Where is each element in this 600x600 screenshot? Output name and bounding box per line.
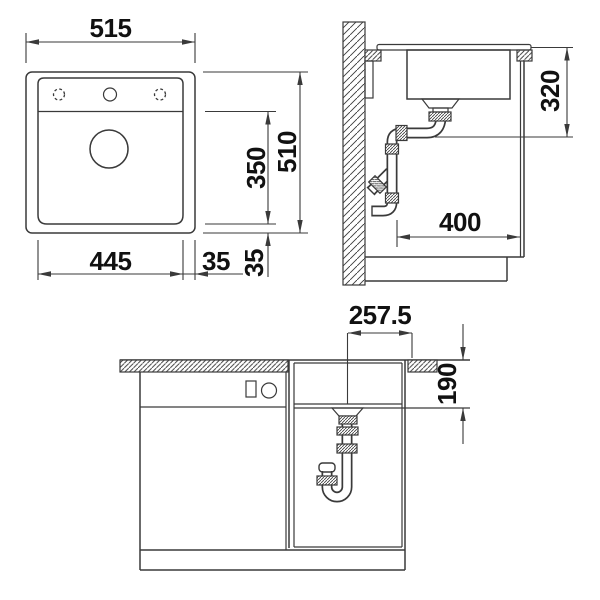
pipe-union-lower [386,193,399,203]
dim-label-overall-depth: 510 [272,131,302,173]
pipe-union-upper [386,144,399,154]
technical-drawing: 515 510 350 35 [0,0,600,600]
faucet-hole-right-icon [155,89,166,100]
counter-cut-left-front [120,360,288,372]
sink-outer-edge [26,72,195,233]
sink-spec-sheet: 515 510 350 35 [0,0,600,600]
trap-stub-cap [319,463,335,472]
drain-icon [90,130,128,168]
faucet-hole-center-icon [104,88,117,101]
drawer-symbol-circle [262,383,277,398]
plan-view: 515 510 350 35 [26,13,308,280]
dim-label-bowl-depth: 350 [241,147,271,189]
dim-label-center-to-edge: 257.5 [349,300,412,330]
counter-cut-left [365,50,381,61]
dim-label-rim-side: 35 [202,246,230,276]
pipe-union-horizontal [396,126,407,141]
dim-rim-side: 35 [183,240,243,280]
dim-label-overall-width: 515 [90,13,132,43]
trap-union-stub [317,476,337,485]
front-section-view: 257.5 190 [120,300,470,570]
drawer-symbol-rect [246,381,256,397]
trap-union-mid [337,444,357,453]
counter-cut-right [517,50,532,61]
dim-label-rim-front: 35 [239,249,269,277]
dim-label-under-counter-depth: 320 [535,70,565,112]
dim-overall-width: 515 [26,13,195,63]
sink-rim-profile [377,45,531,51]
dim-rim-front: 35 [239,233,271,277]
dim-under-counter-depth: 320 [435,48,573,138]
dim-bowl-width: 445 [38,240,183,280]
faucet-hole-left-icon [54,89,65,100]
dim-label-counter-to-bowl-bottom: 190 [432,363,462,405]
bowl-section [407,50,510,99]
dim-counter-to-bowl-bottom: 190 [432,324,466,444]
s-trap-pipes [317,424,358,497]
dim-drain-clearance: 400 [397,207,520,247]
dim-label-bowl-width: 445 [90,246,132,276]
dim-bowl-depth: 350 [205,112,276,225]
trap-union-top [337,427,358,435]
strainer-front [332,408,363,424]
strainer-side [422,99,459,121]
wall-section [343,22,365,285]
dim-label-drain-clearance: 400 [439,207,481,237]
wall-batten [365,61,373,98]
side-section-view: 320 400 [343,22,573,285]
drain-pipes [367,116,441,217]
